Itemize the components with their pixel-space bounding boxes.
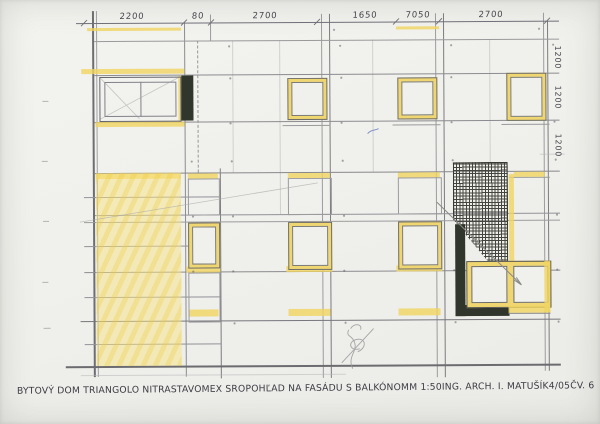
drawing-date: 4/05 xyxy=(549,380,571,391)
dim-label-top-3: 1650 xyxy=(337,11,394,21)
sheet-number: ČV. 6 xyxy=(570,380,594,391)
architect-name: ING. ARCH. I. MATUŠÍK xyxy=(442,381,549,393)
drawing-subject: POHĽAD NA FASÁDU S BALKÓNOM xyxy=(245,382,409,395)
dim-label-top-4: 7050 xyxy=(394,10,443,20)
window-r1-c4 xyxy=(506,73,546,121)
project-name: BYTOVÝ DOM TRIANGOLO NITRA xyxy=(17,384,171,396)
dim-label-right-0: 1200 xyxy=(549,40,562,76)
company-name: STAVOMEX SRO xyxy=(171,384,246,396)
highlight-band xyxy=(87,28,181,31)
balcony-window xyxy=(466,261,551,308)
dim-label-top-1: 80 xyxy=(185,11,212,21)
margin-ticks xyxy=(41,101,50,328)
top-dimension-labels: 2200 80 2700 1650 7050 2700 xyxy=(0,0,599,2)
dim-label-top-2: 2700 xyxy=(237,11,294,21)
sketch-sheet: 2200 80 2700 1650 7050 2700 1200 1200 12… xyxy=(0,0,600,424)
title-block: BYTOVÝ DOM TRIANGOLO NITRA STAVOMEX SRO … xyxy=(17,380,589,396)
window-r1-c2 xyxy=(287,78,327,120)
window-r2-c1 xyxy=(188,222,220,268)
window-r2-c3 xyxy=(398,221,442,269)
dim-label-right-2: 1200 xyxy=(550,128,563,164)
dim-label-top-0: 2200 xyxy=(102,12,163,22)
dark-panel xyxy=(181,76,193,121)
pencil-scribble xyxy=(342,325,374,369)
drawing-scale: M 1:50 xyxy=(409,382,442,393)
window-r1-c1 xyxy=(99,77,181,122)
dim-label-top-5: 2700 xyxy=(463,10,520,20)
spandrel-panel xyxy=(188,178,220,215)
dim-label-right-1: 1200 xyxy=(549,80,562,116)
black-frame-vertical xyxy=(455,224,465,316)
yellow-strip xyxy=(96,173,182,366)
facade-drawing: 2200 80 2700 1650 7050 2700 1200 1200 12… xyxy=(0,0,600,424)
window-r1-c3 xyxy=(397,77,437,119)
window-mullion xyxy=(140,82,141,117)
right-dimension-labels: 1200 1200 1200 xyxy=(0,0,599,2)
window-r2-c2 xyxy=(288,222,332,270)
